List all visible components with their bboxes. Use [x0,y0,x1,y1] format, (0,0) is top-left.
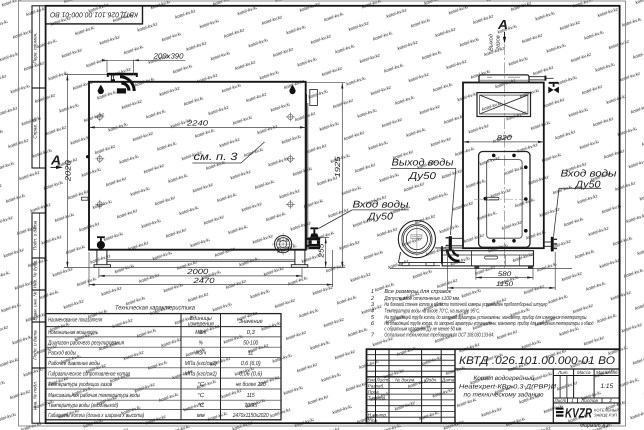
svg-text:Температура уходящих газов: Температура уходящих газов [48,381,112,388]
svg-text:КВТД.026.101.00.000-01 ВО: КВТД.026.101.00.000-01 ВО [49,10,138,17]
svg-text:Лист: Лист [375,377,388,382]
svg-text:Лит.: Лит. [557,370,569,375]
svg-text:Выход: Выход [488,34,495,51]
svg-text:Инв. № подл.: Инв. № подл. [33,381,38,410]
svg-text:Листов: Листов [580,398,598,403]
svg-text:KVZR: KVZR [565,406,592,421]
svg-text:Все размеры для справок: Все размеры для справок [384,288,451,295]
svg-text:Разраб.: Разраб. [368,384,385,389]
svg-text:газов: газов [496,35,502,49]
svg-text:МВт: МВт [195,329,206,336]
svg-text:Подп. и дата: Подп. и дата [33,330,38,360]
svg-text:Температура воды (вход/выход): Температура воды (вход/выход) [48,402,118,409]
svg-text:0,06 (0,6): 0,06 (0,6) [239,370,262,377]
svg-text:2470х1150х2020: 2470х1150х2020 [232,412,269,419]
svg-text:Ду50: Ду50 [367,212,394,223]
svg-text:КВТД .026.101.00.000-01 ВО: КВТД .026.101.00.000-01 ВО [459,355,615,367]
svg-text:Значение: Значение [239,318,264,325]
svg-text:Температура воды на входе 70°: Температура воды на входе 70°С, на выход… [384,308,480,315]
svg-text:Ду50: Ду50 [408,171,437,182]
svg-text:Н.контр.: Н.контр. [368,412,387,417]
svg-text:Формат А3: Формат А3 [580,423,608,429]
svg-text:МПа (кгс/см2): МПа (кгс/см2) [185,370,217,377]
svg-text:820: 820 [497,135,512,142]
svg-text:Масса: Масса [577,370,591,375]
svg-text:200х390: 200х390 [152,52,184,61]
svg-text:измерения: измерения [188,322,215,328]
svg-text:1925: 1925 [333,155,342,177]
svg-text:Лист: Лист [553,398,566,403]
svg-text:Подп. и дата: Подп. и дата [33,220,38,250]
svg-text:На боковой стенке котла в обла: На боковой стенке котла в области топочн… [384,301,547,308]
svg-text:0,3: 0,3 [247,329,256,336]
svg-text:м3/ч: м3/ч [195,350,206,357]
svg-text:№ докум.: № докум. [395,377,415,382]
svg-text:Утв.: Утв. [368,418,378,423]
svg-text:МПа (кгс/см2): МПа (кгс/см2) [185,360,217,367]
svg-text:Габариты котла (длина х ширина: Габариты котла (длина х ширина х высота) [48,412,144,419]
svg-text:Котел водогрейный: Котел водогрейный [474,375,535,382]
svg-text:A: A [497,17,508,32]
svg-text:Перв. примен.: Перв. примен. [33,32,38,63]
svg-text:ЗАВОД РЭП: ЗАВОД РЭП [594,413,617,418]
svg-text:°С: °С [197,381,205,388]
svg-text:Наименование показателя: Наименование показателя [48,316,103,323]
svg-text:2020: 2020 [64,159,73,182]
svg-text:1: 1 [371,289,374,295]
svg-text:11: 11 [248,350,253,357]
svg-text:Пров.: Пров. [368,390,380,395]
svg-text:Подп.: Подп. [425,377,437,382]
svg-text:Расход воды: Расход воды [48,350,76,357]
svg-text:580: 580 [498,271,512,278]
svg-text:Максимальная рабочая температу: Максимальная рабочая температура воды [48,392,140,399]
svg-text:0,6 (6,0): 0,6 (6,0) [241,360,261,367]
svg-text:Выход воды: Выход воды [392,157,455,168]
svg-text:2470: 2470 [192,276,215,285]
svg-text:Т.контр.: Т.контр. [368,395,387,400]
svg-text:см. п. 3: см. п. 3 [194,151,238,163]
svg-text:Инв. № дубл.: Инв. № дубл. [33,260,38,289]
svg-text:°С: °С [197,402,205,409]
svg-text:Диапазон рабочего регулировани: Диапазон рабочего регулирования [47,339,124,346]
svg-text:255: 255 [318,243,325,258]
svg-text:%: % [199,339,203,346]
svg-text:50-100: 50-100 [243,339,259,346]
svg-text:Рабочее давление воды: Рабочее давление воды [48,360,100,367]
svg-text:Допустимое отклонение ±100 мм.: Допустимое отклонение ±100 мм. [384,296,461,302]
svg-text:Справ. №: Справ. № [33,117,38,138]
svg-text:Гидравлическое сопротивление к: Гидравлическое сопротивление котла [48,370,130,377]
svg-text:1:15: 1:15 [600,383,613,390]
svg-text:A: A [50,153,61,168]
svg-text:Изм.: Изм. [366,377,376,382]
svg-text:2000: 2000 [186,267,209,276]
svg-text:мм: мм [197,413,205,419]
svg-text:1150: 1150 [496,281,513,288]
svg-text:Heatexpert-КВр-0,3-Д(РВР)И: Heatexpert-КВр-0,3-Д(РВР)И [459,384,557,391]
svg-text:Вход воды: Вход воды [561,169,618,180]
svg-text:Остальные технические требован: Остальные технические требования по ОСТ … [384,331,494,338]
svg-text:На подводящей трубе котла, до: На подводящей трубе котла, до запорной а… [384,314,587,321]
svg-text:не более 220: не более 220 [236,381,267,388]
svg-text:Дата: Дата [441,377,455,382]
svg-text:70/95: 70/95 [244,402,258,409]
svg-text:1: 1 [571,398,574,403]
svg-text:2: 2 [608,398,612,403]
svg-text:Взам. инв. №: Взам. инв. № [33,292,38,321]
svg-text:Техническая характеристика: Техническая характеристика [115,305,196,312]
svg-text:115: 115 [247,392,256,399]
svg-text:по техническому заданию: по техническому заданию [464,392,544,399]
svg-text:4: 4 [371,309,374,315]
svg-text:°С: °С [197,392,205,399]
svg-text:Номинальная мощность: Номинальная мощность [48,329,98,336]
svg-text:2240: 2240 [186,119,209,128]
svg-text:Масштаб: Масштаб [596,370,618,375]
svg-text:Вход воды: Вход воды [353,199,410,210]
